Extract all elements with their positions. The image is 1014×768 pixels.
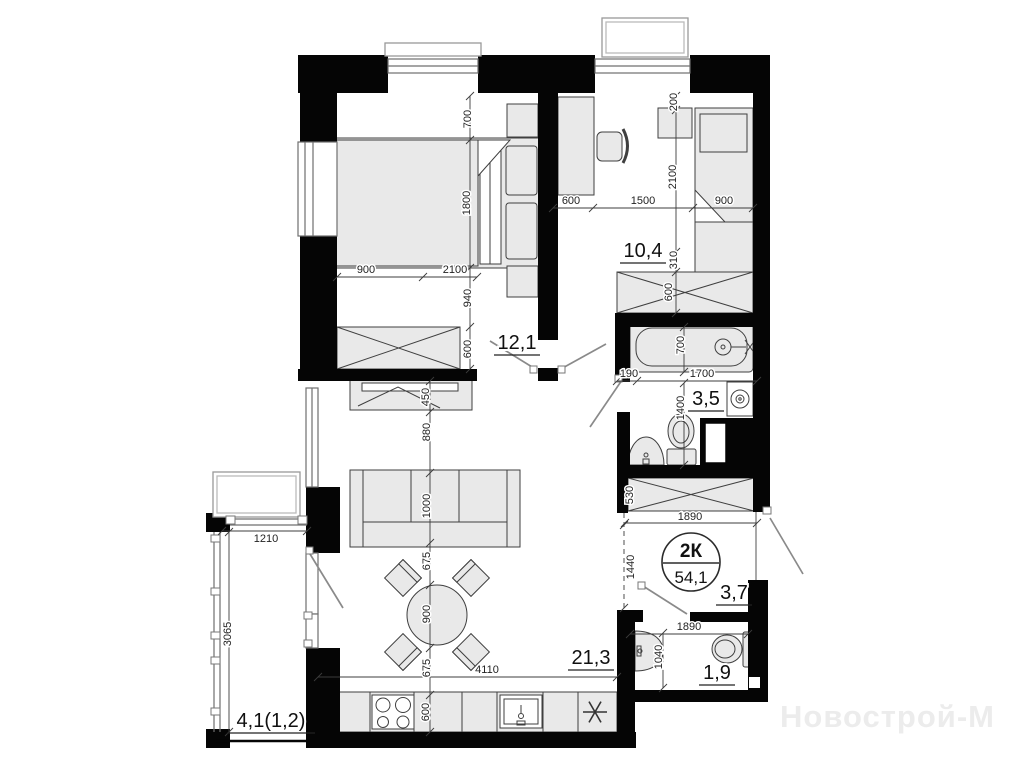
dimension-label: 310 (668, 251, 680, 269)
door-wc (643, 586, 687, 614)
dimension-label: 2100 (443, 264, 467, 276)
balcony-glazing (211, 472, 307, 741)
door-entry (770, 518, 803, 574)
dimension-label: 1400 (675, 396, 687, 420)
dimension-label: 940 (462, 289, 474, 307)
room-label-bedroom-2: 10,4 (624, 240, 663, 262)
dimension-label: 1000 (421, 494, 433, 518)
wardrobe-bedroom2 (617, 272, 753, 313)
sofa (350, 470, 520, 547)
room-label-bedroom-1: 12,1 (498, 332, 537, 354)
apartment-total-area: 54,1 (674, 568, 707, 587)
dining-chair (385, 560, 422, 597)
nightstand (507, 266, 538, 297)
tv (362, 383, 458, 391)
sink-bathroom (628, 437, 664, 465)
watermark: Новострой-М (780, 699, 995, 734)
wardrobe-bedroom1 (337, 327, 460, 369)
dimension-label: 190 (620, 368, 638, 380)
stove (372, 695, 414, 729)
room-label-living-room: 21,3 (572, 647, 611, 669)
room-label-balcony: 4,1(1,2) (237, 710, 306, 732)
dimension-label: 1440 (625, 555, 637, 579)
pillow (506, 203, 537, 259)
bathtub (630, 322, 755, 372)
washing-machine (727, 382, 753, 416)
double-bed (322, 138, 540, 268)
dimension-label: 600 (462, 340, 474, 358)
dimension-label: 900 (421, 605, 433, 623)
dimension-label: 2100 (667, 165, 679, 189)
window-bedroom2 (595, 18, 690, 73)
dimension-label: 700 (675, 336, 687, 354)
dimension-label: 700 (462, 110, 474, 128)
window-bedroom1 (385, 43, 481, 73)
room-label-entry-hall: 3,7 (720, 582, 748, 604)
nightstand (507, 104, 538, 137)
window-living (306, 388, 318, 487)
desk (558, 97, 594, 195)
toilet-bathroom (667, 414, 696, 465)
apartment-type-badge: 2К 54,1 (662, 533, 720, 591)
dimension-label: 600 (562, 195, 580, 207)
room-label-bathroom: 3,5 (692, 388, 720, 410)
dimension-label: 1800 (461, 191, 473, 215)
dimension-label: 1890 (677, 621, 701, 633)
pillow (506, 146, 537, 195)
dining-chair (385, 634, 422, 671)
dimension-label: 1500 (631, 195, 655, 207)
door-bedroom2 (559, 344, 606, 370)
dimension-label: 600 (420, 703, 432, 721)
dimension-label: 1210 (254, 533, 278, 545)
floor-plan-page: 7001800940600900210045088010006759006756… (0, 0, 1014, 768)
dimension-label: 450 (420, 388, 432, 406)
dimension-label: 600 (663, 283, 675, 301)
bedside-cabinet (658, 108, 692, 138)
dimension-label: 900 (715, 195, 733, 207)
hall-wardrobe (628, 478, 754, 511)
balcony-door-opening (304, 553, 318, 648)
room-label-wc: 1,9 (703, 662, 731, 684)
dining-table (407, 585, 467, 645)
dimension-label: 1040 (653, 645, 665, 669)
dimension-label: 3065 (222, 622, 234, 646)
dimension-label: 4110 (475, 664, 499, 676)
dimension-label: 1700 (690, 368, 714, 380)
dimension-label: 1890 (678, 511, 702, 523)
office-chair (597, 129, 628, 163)
window-bedroom1-side (298, 142, 337, 236)
dimension-label: 900 (357, 264, 375, 276)
dimension-label: 200 (668, 93, 680, 111)
floor-plan-drawing: 7001800940600900210045088010006759006756… (0, 0, 1014, 768)
dimension-label: 675 (421, 659, 433, 677)
apartment-type: 2К (680, 541, 703, 562)
dimension-label: 880 (421, 423, 433, 441)
dimension-label: 530 (624, 486, 636, 504)
dining-chair (453, 560, 490, 597)
pillow (700, 114, 747, 152)
dimension-label: 675 (421, 552, 433, 570)
kitchen-sink (500, 695, 542, 728)
entry-door-opening (753, 512, 770, 580)
tv-stand (350, 379, 472, 410)
